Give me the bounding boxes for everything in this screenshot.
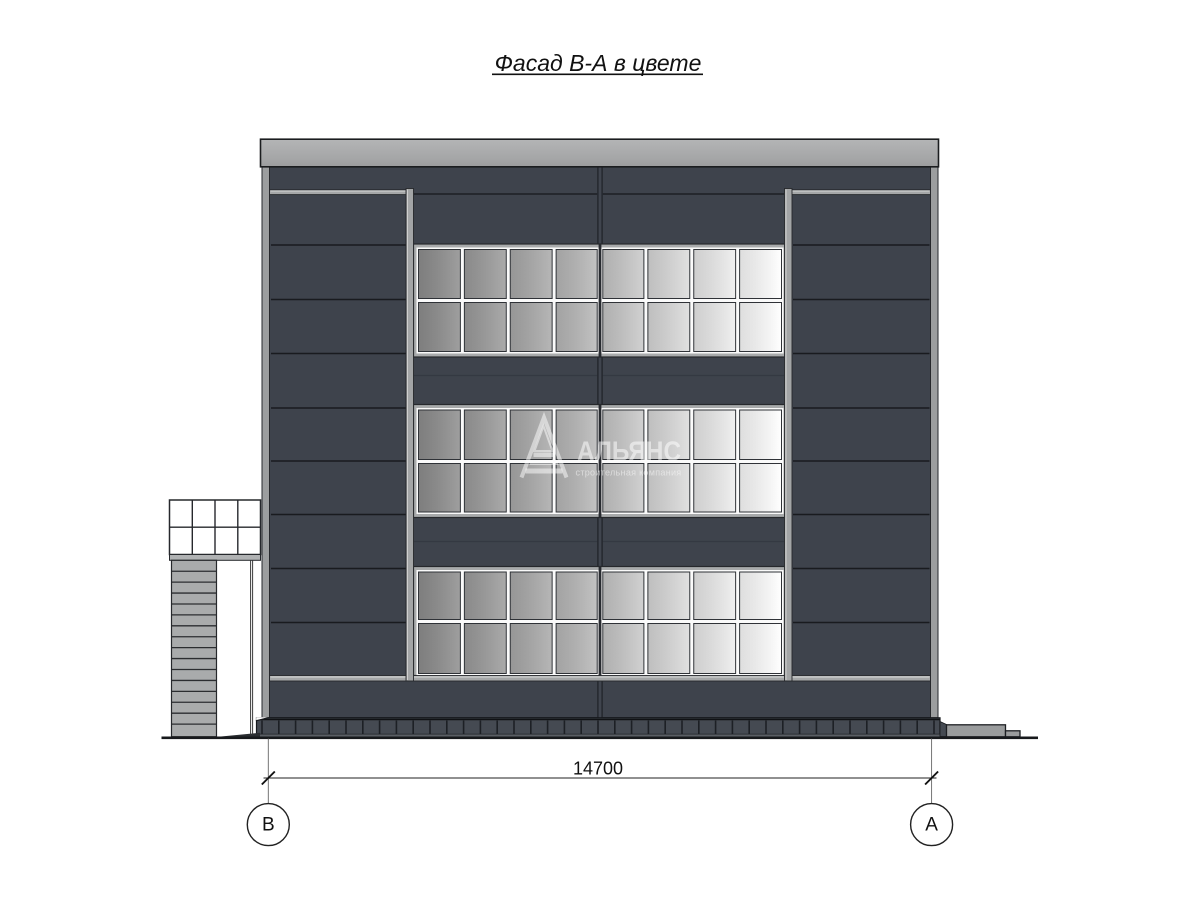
svg-text:А: А xyxy=(925,815,938,836)
svg-text:В: В xyxy=(262,815,275,836)
svg-text:Фасад В-А в цвете: Фасад В-А в цвете xyxy=(495,50,702,76)
svg-text:строительная компания: строительная компания xyxy=(576,468,682,478)
svg-text:14700: 14700 xyxy=(573,759,623,779)
svg-text:АЛЬЯНС: АЛЬЯНС xyxy=(577,436,681,467)
